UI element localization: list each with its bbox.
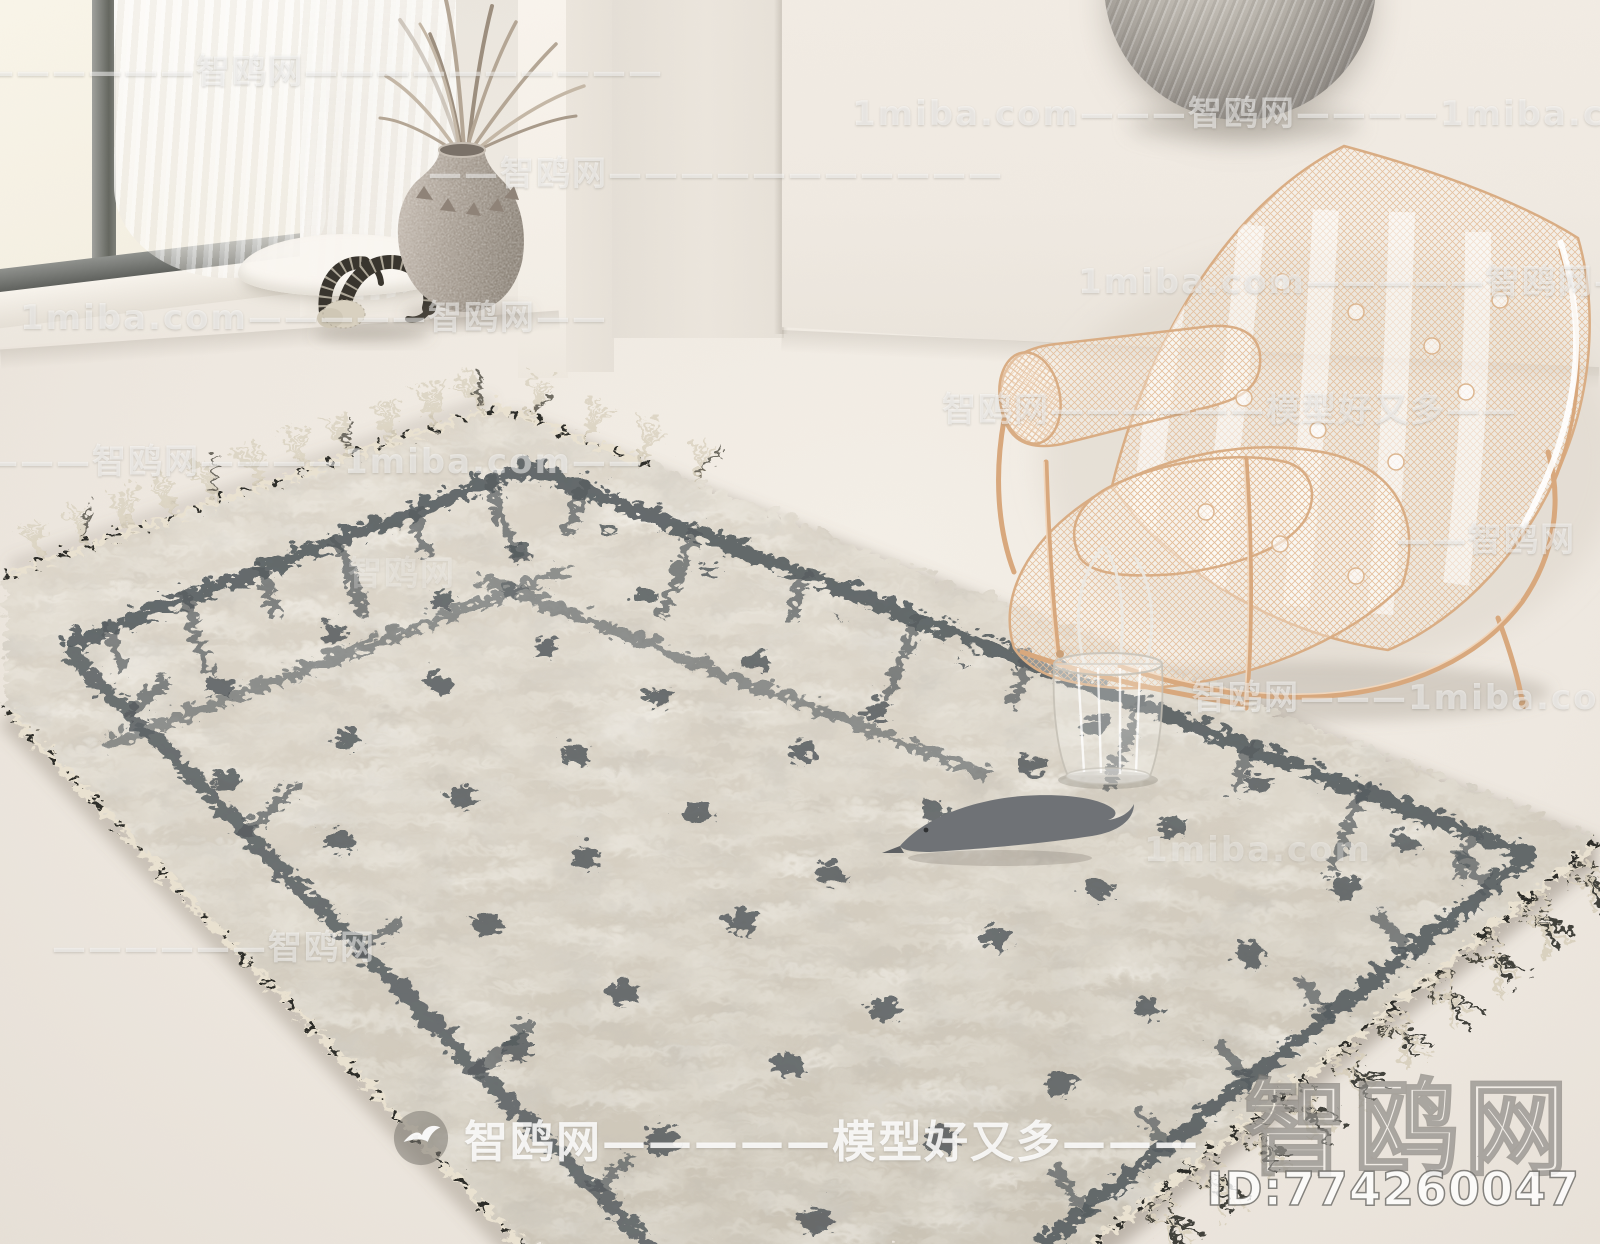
watermark-row: 1miba.com—————智鸥网— bbox=[1078, 254, 1600, 303]
rug-border-lines bbox=[64, 462, 1524, 1244]
magazine-corner-text: CO bbox=[1015, 784, 1029, 805]
watermark-row: 1miba.com———智鸥网————1miba.com bbox=[852, 86, 1600, 135]
magazine-edge-text: MONTBLANC bbox=[1189, 720, 1204, 805]
chair-wall-shadow bbox=[1040, 250, 1600, 670]
magazine-left-edge: CO bbox=[1007, 749, 1036, 829]
curtain-pooled-fabric bbox=[238, 234, 460, 296]
bird-shadow bbox=[908, 850, 1092, 866]
wall-disc-shadow bbox=[1130, 108, 1360, 142]
scene-illustration bbox=[0, 0, 1600, 1244]
vase-studs bbox=[416, 186, 519, 216]
watermark-row: ——————智鸥网 bbox=[52, 920, 376, 969]
watermark-row: ——智鸥网 bbox=[1396, 512, 1576, 561]
chair-right-armrest bbox=[1074, 457, 1312, 575]
magazine-right-edge: MONTBLANC bbox=[1183, 723, 1210, 803]
left-wall bbox=[0, 0, 548, 404]
rug-dot-pattern bbox=[0, 458, 1600, 1244]
wall-column-front bbox=[518, 0, 568, 378]
rug-trim bbox=[2, 400, 1593, 1244]
bird-figurine bbox=[882, 795, 1134, 853]
window-jamb bbox=[300, 0, 344, 324]
watermark-footer: 智鸥网—————模型好又多——— bbox=[392, 1106, 1200, 1170]
book-spine-montblanc: MONTBLANC bbox=[1003, 831, 1246, 908]
book-spine-art-house: ART HOUSE bbox=[993, 804, 1216, 870]
plant-leaves bbox=[380, 0, 584, 154]
books-shadow bbox=[985, 852, 1243, 922]
recessed-wall bbox=[612, 0, 784, 338]
chair-left-armrest bbox=[1000, 326, 1260, 446]
wall-corner bbox=[774, 0, 788, 334]
fluffy-rug bbox=[0, 362, 1600, 1244]
watermark-row: 智鸥网———1miba.com bbox=[1192, 670, 1600, 719]
chair-floor-shadow bbox=[1050, 662, 1550, 722]
chair-rim-highlight bbox=[1522, 240, 1576, 528]
interior-render-scene: MONTBLANC ART HOUSE CO MONTBLANC bbox=[0, 0, 1600, 1244]
sheer-curtain-left bbox=[114, 0, 326, 278]
book-spine-text: MONTBLANC bbox=[1048, 845, 1211, 893]
watermark-row: 1miba.com bbox=[1144, 830, 1372, 870]
chair-mesh-buttons bbox=[1198, 274, 1508, 584]
rug-grid-stubs bbox=[102, 477, 1484, 1204]
window-frame-bottom bbox=[0, 230, 332, 294]
plaster-grain bbox=[0, 0, 1600, 1244]
window-mullion bbox=[92, 0, 116, 300]
baseboard-shadow-right bbox=[781, 330, 1599, 389]
chair-frame bbox=[999, 250, 1578, 708]
watermark-row: 智鸥网——————模型好又多—— bbox=[942, 382, 1518, 431]
watermark-row: 智鸥网 bbox=[348, 546, 456, 595]
rug-shadow bbox=[8, 402, 1595, 1244]
watermark-footer-text: 智鸥网—————模型好又多——— bbox=[464, 1106, 1200, 1170]
watermark-row: 1miba.com—————智鸥网—— bbox=[20, 290, 608, 339]
window-sill bbox=[0, 250, 360, 329]
model-id: ID:774260047 bbox=[1206, 1162, 1580, 1216]
right-wall bbox=[782, 0, 1600, 376]
baseboard-shadow-left bbox=[0, 310, 560, 369]
watermark-bird-logo bbox=[392, 1109, 450, 1167]
magazine: CO MONTBLANC bbox=[1005, 719, 1213, 836]
wire-mesh-chair bbox=[992, 146, 1589, 709]
window-glass bbox=[0, 0, 318, 334]
watermark-row: ——智鸥网——————————— bbox=[428, 146, 1004, 195]
glass-vase bbox=[1054, 548, 1163, 784]
vase-with-plant bbox=[380, 0, 584, 324]
rug-tassels bbox=[10, 362, 717, 553]
watermark-row: ———智鸥网————1miba.com—— bbox=[0, 434, 644, 483]
magazine-cover-panel bbox=[1037, 731, 1184, 821]
foreground-objects bbox=[0, 0, 1600, 1244]
rug-loop-fringe bbox=[1138, 851, 1600, 1244]
chair-back-shell bbox=[1112, 146, 1590, 650]
barcode bbox=[1014, 754, 1029, 782]
chair-seat-shell bbox=[1010, 447, 1410, 688]
wall-column-side bbox=[566, 0, 614, 372]
watermark-row: ——————智鸥网—————————— bbox=[0, 44, 664, 93]
horn-decor bbox=[314, 262, 430, 343]
book-logo-ring bbox=[1016, 875, 1038, 897]
metal-wall-disc bbox=[1104, 0, 1376, 120]
watermark-brand-logo: 智鸥网 bbox=[1244, 1044, 1574, 1195]
sheer-curtain-right bbox=[300, 0, 456, 300]
book-spine-text: ART HOUSE bbox=[1009, 818, 1155, 863]
glass-shadow bbox=[1058, 771, 1158, 789]
